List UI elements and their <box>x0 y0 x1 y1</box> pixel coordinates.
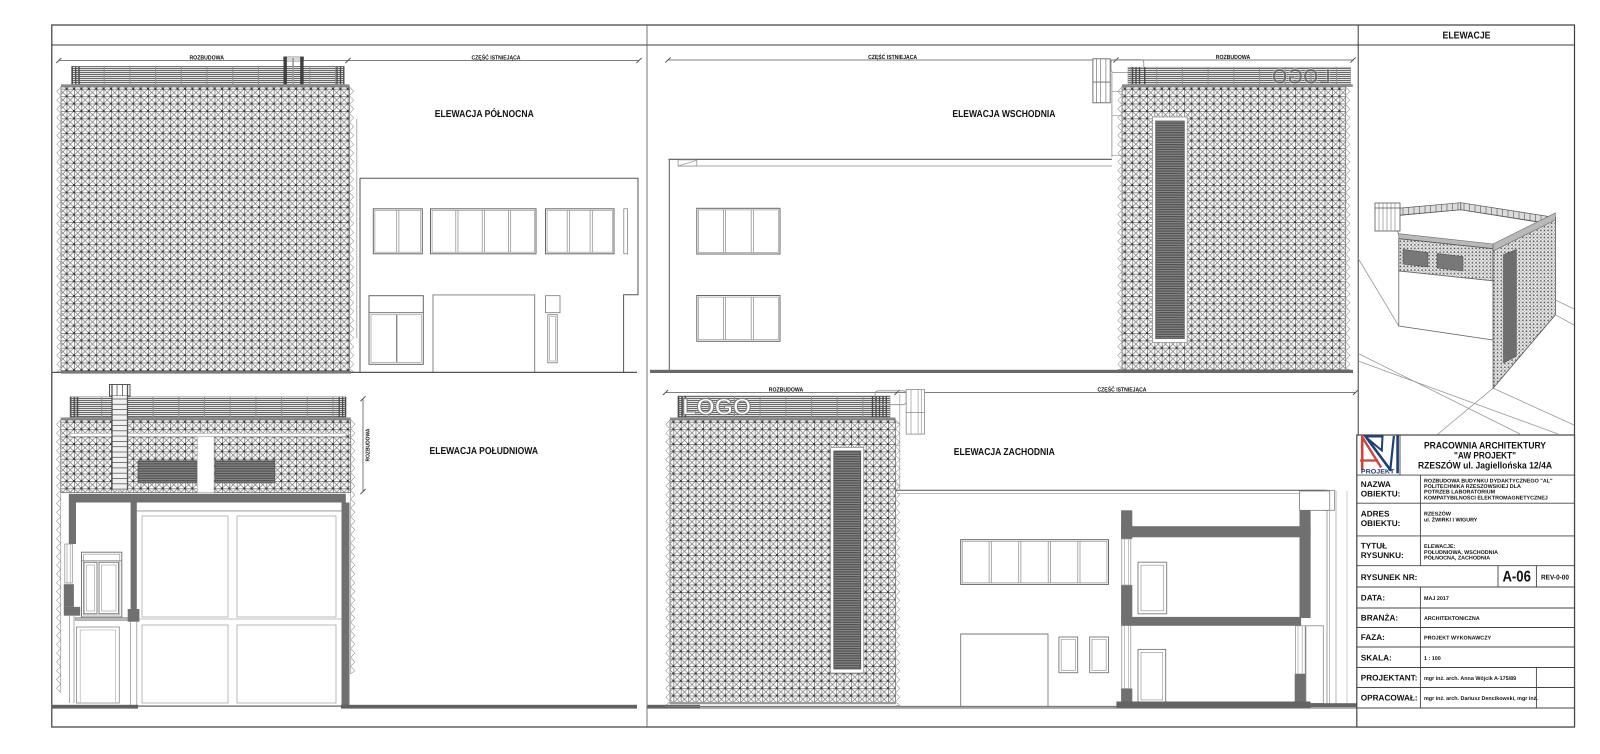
svg-text:ELEWACJA POŁUDNIOWA: ELEWACJA POŁUDNIOWA <box>430 446 539 457</box>
svg-text:SKALA:: SKALA: <box>1361 654 1392 663</box>
svg-text:ul. ŻWIRKI I WIGURY: ul. ŻWIRKI I WIGURY <box>1424 517 1478 524</box>
svg-text:RYSUNEK NR:: RYSUNEK NR: <box>1361 573 1418 582</box>
svg-text:ELEWACJA WSCHODNIA: ELEWACJA WSCHODNIA <box>952 109 1055 120</box>
svg-text:ROZBUDOWA: ROZBUDOWA <box>1216 54 1251 61</box>
svg-text:FAZA:: FAZA: <box>1361 633 1385 642</box>
svg-text:REV-0-00: REV-0-00 <box>1541 575 1569 582</box>
svg-text:LOGO: LOGO <box>682 393 751 419</box>
svg-text:RZESZÓW: RZESZÓW <box>1424 511 1452 518</box>
svg-text:RZESZÓW ul. Jagiellońska 12/4A: RZESZÓW ul. Jagiellońska 12/4A <box>1418 460 1552 472</box>
svg-text:1 : 100: 1 : 100 <box>1424 656 1441 662</box>
svg-text:ELEWACJE: ELEWACJE <box>1443 30 1491 41</box>
svg-text:TYTUŁ: TYTUŁ <box>1361 542 1387 551</box>
svg-text:BRANŻA:: BRANŻA: <box>1361 613 1398 623</box>
svg-text:DATA:: DATA: <box>1361 594 1385 603</box>
svg-text:PROJEKTANT:: PROJEKTANT: <box>1361 674 1418 683</box>
svg-text:MAJ 2017: MAJ 2017 <box>1424 596 1449 602</box>
svg-text:ELEWACJA ZACHODNIA: ELEWACJA ZACHODNIA <box>954 447 1055 458</box>
svg-text:OBIEKTU:: OBIEKTU: <box>1361 519 1401 528</box>
svg-text:ELEWACJA PÓŁNOCNA: ELEWACJA PÓŁNOCNA <box>435 108 534 120</box>
svg-text:OPRACOWAŁ:: OPRACOWAŁ: <box>1361 694 1418 703</box>
svg-text:PÓŁNOCNA, ZACHODNIA: PÓŁNOCNA, ZACHODNIA <box>1424 555 1490 562</box>
svg-text:ROZBUDOWA: ROZBUDOWA <box>366 429 372 462</box>
svg-text:PROJEKT: PROJEKT <box>1361 468 1395 475</box>
svg-text:A-06: A-06 <box>1502 569 1531 586</box>
svg-text:ADRES: ADRES <box>1361 510 1390 519</box>
svg-text:CZĘŚĆ ISTNIEJĄCA: CZĘŚĆ ISTNIEJĄCA <box>868 53 918 61</box>
svg-text:ARCHITEKTONICZNA: ARCHITEKTONICZNA <box>1424 616 1480 622</box>
svg-text:mgr inż. arch. Dariusz Denciko: mgr inż. arch. Dariusz Dencikowski, mgr … <box>1424 696 1538 702</box>
svg-text:KOMPATYBILNOŚCI ELEKTROMAGNETY: KOMPATYBILNOŚCI ELEKTROMAGNETYCZNEJ <box>1424 494 1548 501</box>
svg-text:RYSUNKU:: RYSUNKU: <box>1361 551 1404 560</box>
svg-text:CZĘŚĆ ISTNIEJĄCA: CZĘŚĆ ISTNIEJĄCA <box>472 53 522 61</box>
svg-text:CZĘŚĆ ISTNIEJĄCA: CZĘŚĆ ISTNIEJĄCA <box>1098 385 1148 393</box>
svg-text:PROJEKT WYKONAWCZY: PROJEKT WYKONAWCZY <box>1424 636 1491 642</box>
svg-text:ROZBUDOWA: ROZBUDOWA <box>189 54 224 61</box>
svg-text:mgr inż. arch. Anna Wójcik A-1: mgr inż. arch. Anna Wójcik A-175/89 <box>1424 676 1516 682</box>
svg-text:ROZBUDOWA: ROZBUDOWA <box>769 386 804 393</box>
svg-text:OBIEKTU:: OBIEKTU: <box>1361 490 1401 499</box>
svg-text:NAZWA: NAZWA <box>1361 480 1391 489</box>
